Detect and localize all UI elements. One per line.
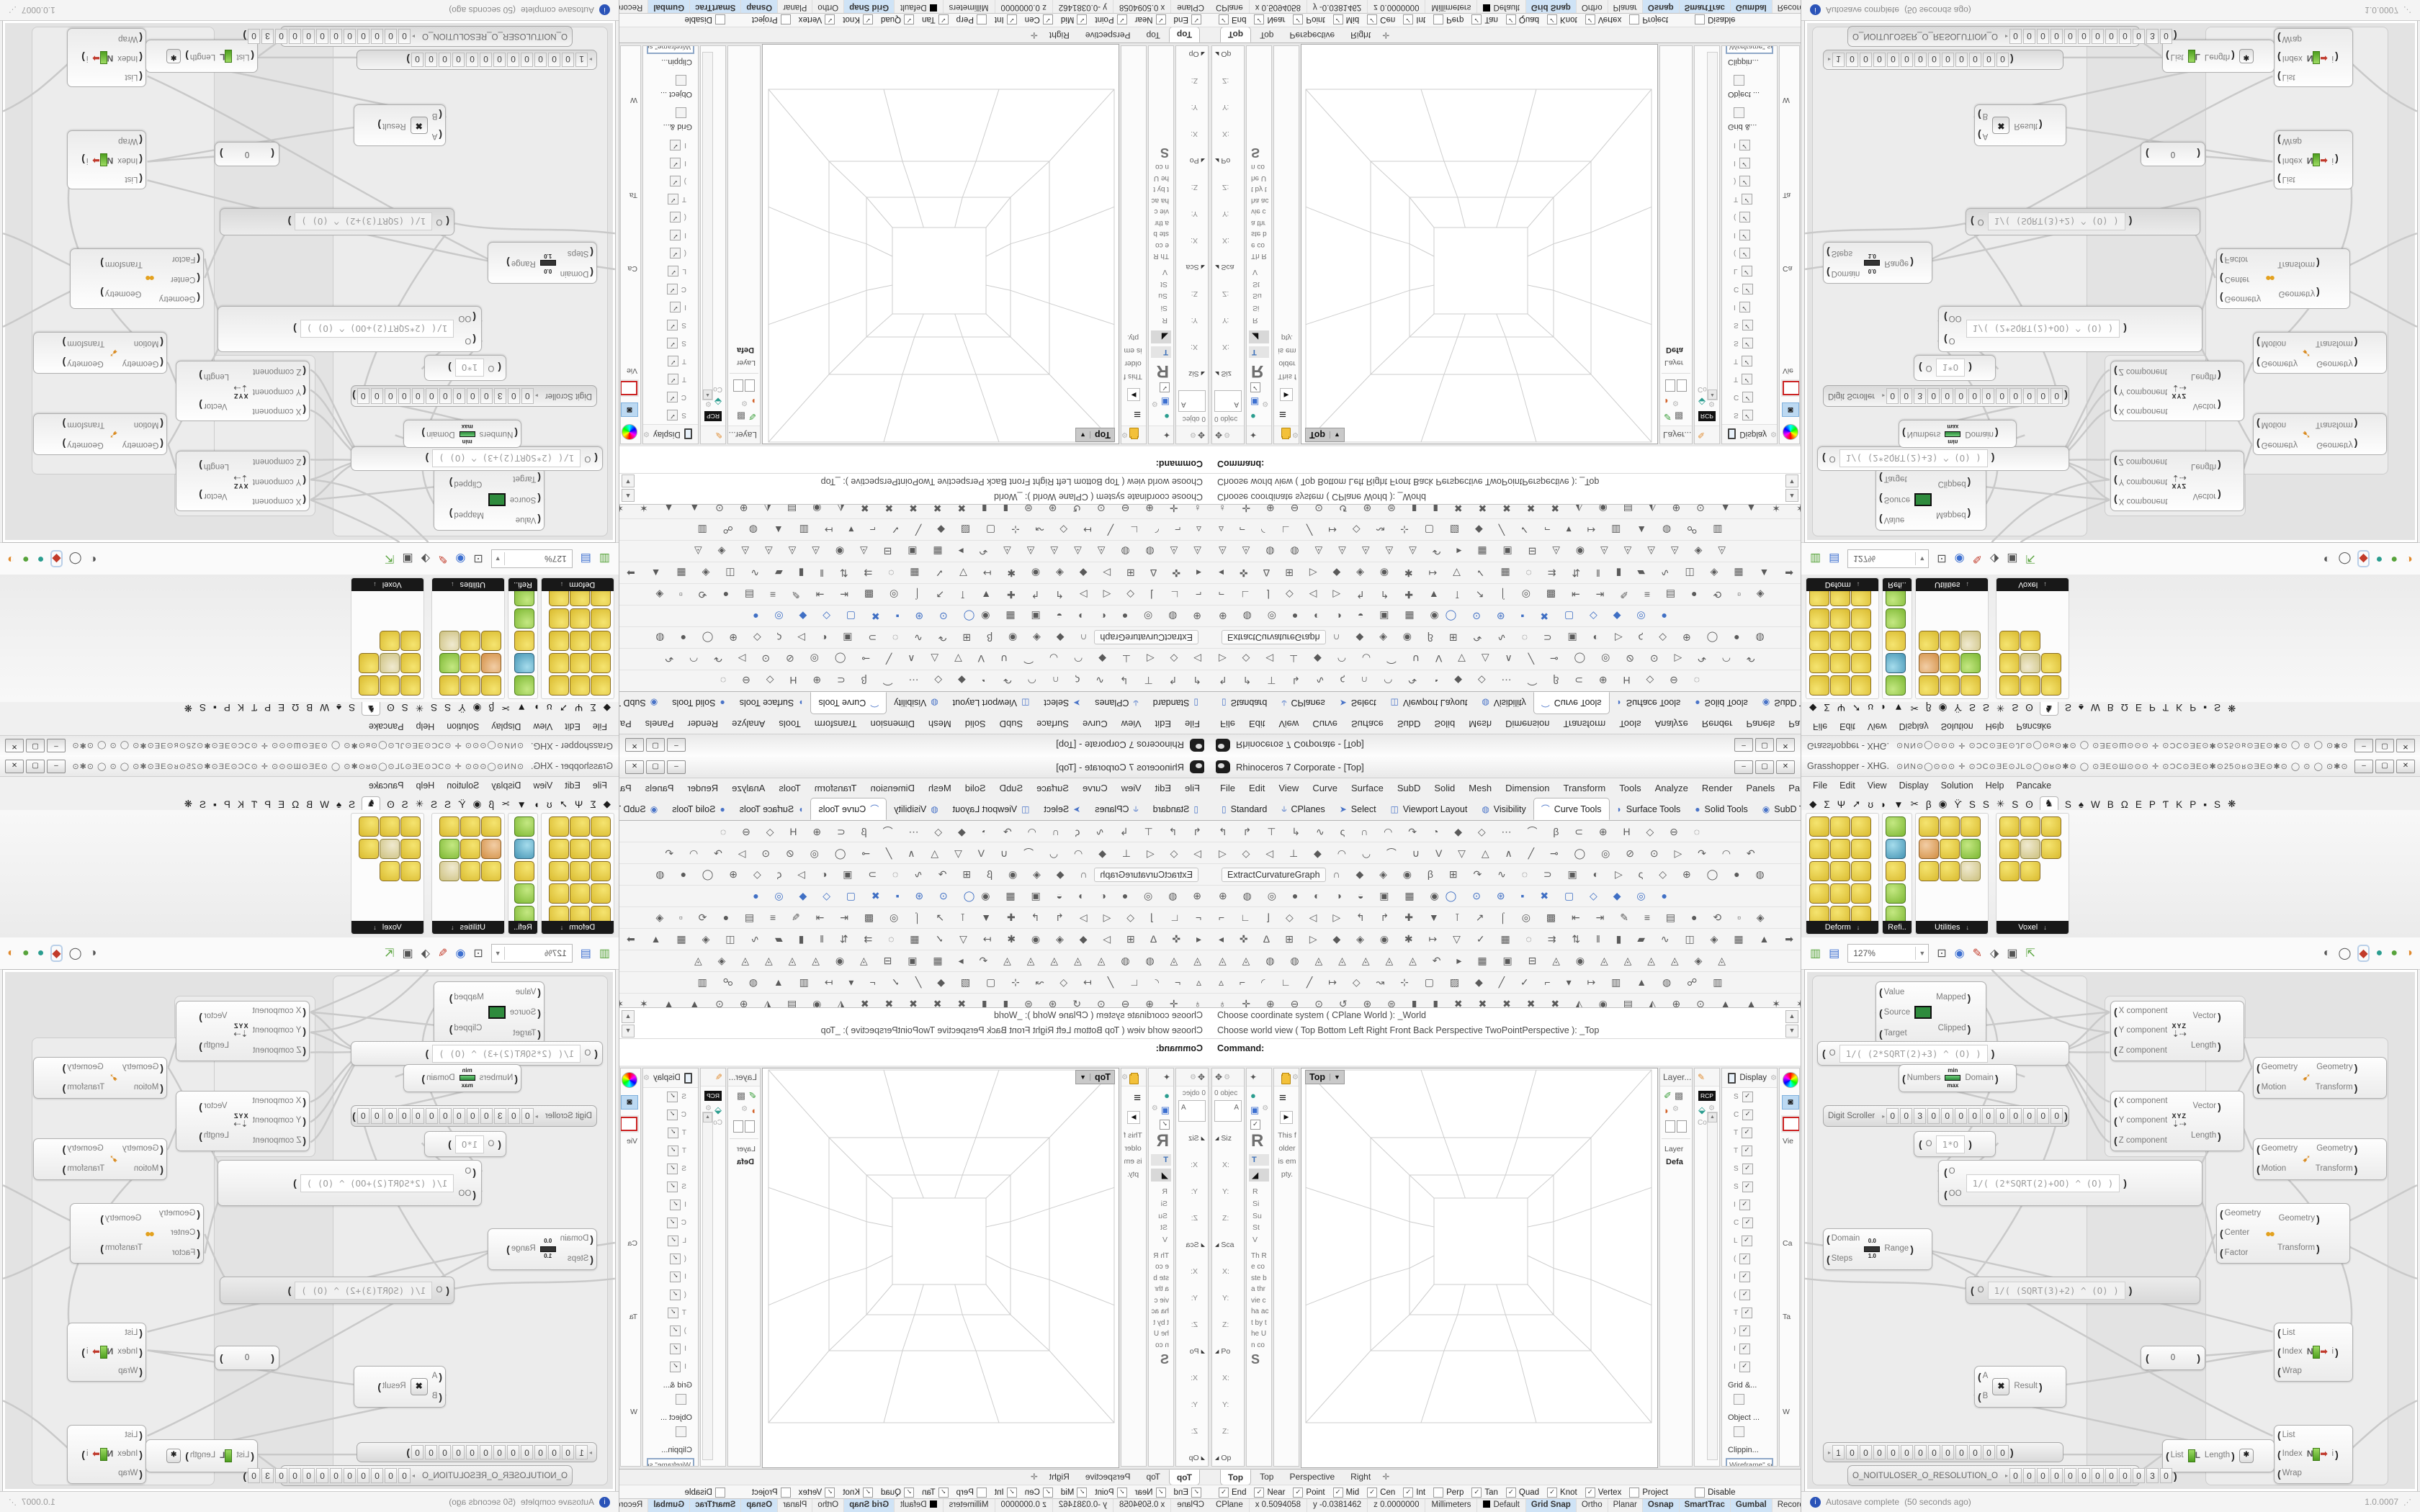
gh-category-tab-icon[interactable]: W xyxy=(2090,701,2101,714)
gh-menu-item[interactable]: Help xyxy=(1986,780,2004,791)
checker-icon[interactable]: ▩ xyxy=(1675,410,1683,422)
node-output-port[interactable]: Mapped xyxy=(1936,510,1971,520)
menu-item[interactable]: Panels xyxy=(645,783,674,793)
component-icon[interactable] xyxy=(549,631,569,651)
component-icon[interactable] xyxy=(591,608,611,629)
scroller-digit[interactable]: 0 xyxy=(2133,1468,2145,1483)
render-panel[interactable]: ✎ RCP ⬙⚙ Co ▲ xyxy=(1694,45,1720,444)
osnap-checkbox[interactable] xyxy=(1043,1488,1053,1498)
gh-category-tab-icon[interactable]: ◆ xyxy=(603,798,611,811)
scroller-digit[interactable]: 3 xyxy=(2146,29,2159,44)
toolbar-icons-row-6[interactable]: ◂ ✜ Δ ⊞ ▷ ◆ ◈ ◉ ✱ ↦ ▽ ✓ ▦ ◌ ⇉ ⇅ ‖ ▮ ▰ ∿ … xyxy=(619,929,1210,950)
node-input-port[interactable]: A xyxy=(432,1372,442,1382)
component-icon[interactable] xyxy=(1960,653,1981,673)
component-icon[interactable] xyxy=(591,839,611,859)
node-input-port[interactable]: Y component xyxy=(253,1116,306,1126)
boxedit-panel[interactable]: ✥⚙ 0 objec A SizX:Y:Z:ScaX:Y:Z:PoX:Y:Z:O… xyxy=(1211,45,1245,444)
node-list-length[interactable]: List L Length ✱ xyxy=(2162,1439,2275,1472)
component-icon[interactable] xyxy=(439,839,460,859)
component-icon[interactable] xyxy=(514,653,534,673)
gh-category-tab-icon[interactable]: ▪ xyxy=(2202,701,2208,714)
command-prompt[interactable]: Command: xyxy=(1210,1038,1801,1058)
learn-list-item[interactable]: Si xyxy=(1149,1198,1168,1210)
viewport-title-tab[interactable]: Top▼ xyxy=(1075,428,1115,442)
toolbar-tab[interactable]: ◍ Visibility xyxy=(887,692,945,714)
toolbar-tab[interactable]: ◉ SubD Too xyxy=(619,798,665,820)
node-input-port[interactable]: Domain xyxy=(560,1234,593,1244)
osnap-toggle[interactable]: End xyxy=(1174,1488,1201,1498)
osnap-checkbox[interactable] xyxy=(1506,15,1516,25)
hamburger-icon[interactable]: ≡ xyxy=(1274,407,1299,426)
command-area[interactable]: Choose coordinate system ( CPlane World … xyxy=(619,445,1210,505)
toolbar-tab[interactable]: ● Solid Tools xyxy=(1688,798,1754,820)
boxedit-field[interactable]: A xyxy=(1178,1100,1206,1122)
component-icon[interactable] xyxy=(380,631,400,651)
status-toggle[interactable]: SmartTrac xyxy=(1680,0,1731,13)
component-icon[interactable] xyxy=(1919,861,1939,881)
scroller-digit[interactable]: 0 xyxy=(508,388,520,404)
gh-category-tab-icon[interactable]: ♠ xyxy=(336,701,342,714)
expression-formula[interactable]: 1/( (2*SQRT(2)+3) ^ (O) ) xyxy=(432,1045,581,1063)
menu-item[interactable]: Transform xyxy=(815,783,857,793)
osnap-toggle[interactable]: Knot xyxy=(1547,1488,1577,1498)
expression-formula[interactable]: 1/( (SQRT(3)+2) ^ (O) ) xyxy=(1988,213,2125,231)
node-input-port[interactable]: Motion xyxy=(122,338,163,348)
node-input-port[interactable]: Value xyxy=(510,515,541,525)
zoom-extents-icon[interactable]: ⊡ xyxy=(473,946,483,960)
display-panel[interactable]: Display ⚙ S C xyxy=(642,1068,699,1467)
scroller-tick[interactable]: ▸ xyxy=(589,1449,592,1456)
zoom-select[interactable]: 127%▼ xyxy=(491,549,573,568)
node-input-port[interactable]: X component xyxy=(2114,1097,2167,1107)
learn-list-item[interactable]: R xyxy=(1252,1186,1271,1198)
menu-item[interactable]: Dimension xyxy=(871,783,915,793)
display-option-checkbox[interactable] xyxy=(1742,410,1753,420)
menu-item[interactable]: Edit xyxy=(1249,783,1265,793)
command-area[interactable]: Choose coordinate system ( CPlane World … xyxy=(1210,1007,1801,1067)
status-toggle[interactable]: Gumbal xyxy=(647,1499,689,1512)
gh-category-tab-icon[interactable]: Ψ xyxy=(574,701,583,714)
node-output-port[interactable]: Transform xyxy=(2316,1164,2358,1174)
osnap-checkbox[interactable] xyxy=(1219,1488,1229,1498)
gh-category-tab-icon[interactable]: S xyxy=(199,701,207,714)
scroller-digit[interactable]: 0 xyxy=(1968,1108,1981,1124)
axes-icon[interactable]: ⇱ xyxy=(385,552,394,566)
component-icon[interactable] xyxy=(2041,816,2061,837)
scroller-digit[interactable]: 0 xyxy=(1996,388,2008,404)
gh-maximize-button[interactable]: ▢ xyxy=(2375,739,2394,753)
osnap-checkbox[interactable] xyxy=(1077,1488,1087,1498)
toolbar-icons-row-8[interactable]: ▵ ⌐ ◜ ∟ ╱ ↦ ◇ ↝ ⊹ ▢ ▨ ◆ ╱ ✓ ⌐ ▾ ↦ ▥ ▲ ◍ … xyxy=(1210,972,1801,994)
layer-panel-tab[interactable]: Layer... xyxy=(728,1068,760,1086)
display-mode-dropdown[interactable]: Wireframe" set xyxy=(647,45,694,54)
gh-category-tab-icon[interactable]: K xyxy=(2175,701,2183,714)
toolbar-tab[interactable]: ➤ Select xyxy=(1036,798,1088,820)
expression-formula[interactable]: 1/( (SQRT(3)+2) ^ (O) ) xyxy=(295,213,432,231)
osnap-toggle[interactable]: Vertex xyxy=(1585,15,1622,25)
component-icon[interactable] xyxy=(1999,653,2020,673)
node-scale[interactable]: GeometryCenterFactor ●● GeometryTransfor… xyxy=(2216,1203,2350,1264)
osnap-checkbox[interactable] xyxy=(1367,15,1377,25)
node-input-port[interactable]: Wrap xyxy=(117,1367,143,1377)
node-digit-scroller-1[interactable]: Digit Scroller ▸ 0030000000000 ) xyxy=(1823,1105,2069,1127)
status-toggle[interactable]: Record History xyxy=(1773,0,1801,13)
new-file-icon[interactable]: ▥ xyxy=(1810,552,1821,566)
toolbar-icons-row-4[interactable]: ⊕ ◍ ◎ ● ◐ ◑ ◒ ▣ ▦ ◉ ◯ ⊙ ⊛ ▪ ✖ ▢ ◇ ◆ ◎ ● xyxy=(1210,886,1801,907)
osnap-checkbox[interactable] xyxy=(1117,1488,1127,1498)
grid-option-checkbox[interactable] xyxy=(676,107,686,118)
node-output-port[interactable]: Domain xyxy=(421,429,454,439)
gh-category-tab-icon[interactable]: W xyxy=(2090,798,2101,811)
toolbar-tab[interactable]: ◉ SubD Too xyxy=(1755,692,1801,714)
menu-item[interactable]: SubD xyxy=(1000,719,1023,730)
component-icon[interactable] xyxy=(1999,675,2020,696)
scroller-digit[interactable]: 0 xyxy=(412,388,424,404)
scroller-digit[interactable]: 0 xyxy=(344,29,356,44)
axes-icon[interactable]: ⇱ xyxy=(2025,552,2035,566)
scroller-tick[interactable]: ▸ xyxy=(535,1113,538,1120)
scroller-digit[interactable]: 0 xyxy=(452,1445,465,1459)
preview-off-icon[interactable]: ◐ xyxy=(90,552,97,565)
node-input-port[interactable]: Factor xyxy=(2220,1248,2261,1258)
gh-category-tab-icon[interactable]: S xyxy=(348,798,356,811)
component-icon[interactable] xyxy=(1886,653,1906,673)
component-icon[interactable] xyxy=(1940,631,1960,651)
component-icon[interactable] xyxy=(1886,608,1906,629)
menu-item[interactable]: View xyxy=(1278,719,1299,730)
menu-item[interactable]: Dimension xyxy=(1505,783,1549,793)
save-icon[interactable]: ▤ xyxy=(1829,552,1839,566)
toolbar-tab[interactable]: ● Solid Tools xyxy=(1688,692,1754,714)
osnap-toggle[interactable]: Cen xyxy=(1367,15,1395,25)
node-expression-1[interactable]: (O 1/( (2*SQRT(2)+3) ^ (O) ) ) xyxy=(351,446,603,471)
display-option-row[interactable]: I xyxy=(1722,298,1777,316)
gh-category-tab-icon[interactable]: S xyxy=(1982,798,1990,811)
menu-item[interactable]: SubD xyxy=(1000,783,1023,793)
gh-category-tab-icon[interactable]: ◉ xyxy=(472,701,483,714)
component-icon[interactable] xyxy=(1960,861,1981,881)
node-bounds[interactable]: Numbers minmax Domain xyxy=(1899,420,2017,448)
osnap-checkbox[interactable] xyxy=(1367,1488,1377,1498)
node-output-port[interactable]: Geometry xyxy=(2316,1063,2358,1073)
panel-value[interactable]: 0 xyxy=(2153,150,2194,158)
menu-item[interactable]: File xyxy=(1185,783,1200,793)
node-digit-scroller-resolution[interactable]: O_NOITULOSER_O_RESOLUTION_O ▸ 0000000000… xyxy=(280,26,573,47)
osnap-disable-checkbox[interactable] xyxy=(1695,15,1705,25)
gh-close-button[interactable]: ✕ xyxy=(5,760,24,773)
toolbar-icons-row-7[interactable]: ◬ ◬ ◍ ◍ ◬ ◬ ◬ ◬ ◬ ↶ ▸ ▦ ▣ ⊟ ◬ ◉ ◬ ◬ ◬ ◬ … xyxy=(619,540,1210,562)
layer-panel[interactable]: Layer... ✐▩ ◗⚙ Layer Defa xyxy=(727,45,761,444)
camera-projector-icon[interactable]: ⬙ xyxy=(714,1104,722,1116)
scroller-digit[interactable]: 0 xyxy=(411,1445,423,1459)
display-option-row[interactable]: I xyxy=(1722,154,1777,172)
checker-icon[interactable]: ▩ xyxy=(1675,1090,1683,1102)
display-option-checkbox[interactable] xyxy=(670,158,681,168)
toolbar-tab[interactable]: ◫ Viewport Layout xyxy=(1384,798,1475,820)
node-multiplication[interactable]: AB ✖ Result xyxy=(354,104,446,146)
gh-menu-item[interactable]: Solution xyxy=(447,780,479,791)
osnap-checkbox[interactable] xyxy=(1293,1488,1303,1498)
viewport-tab[interactable]: Right xyxy=(1343,27,1378,42)
viewport-top[interactable]: Top▼ xyxy=(762,44,1119,444)
scroller-digit[interactable]: 0 xyxy=(493,1445,506,1459)
node-output-port[interactable]: Vector xyxy=(2191,1012,2221,1022)
gh-category-tab-icon[interactable]: ▼ xyxy=(516,701,526,714)
scroller-digit[interactable]: 3 xyxy=(261,29,274,44)
play-icon[interactable]: ▶ xyxy=(1280,388,1293,401)
display-option-row[interactable]: T xyxy=(1722,370,1777,388)
osnap-toggle[interactable]: Tan xyxy=(922,15,949,25)
status-layer-cell[interactable]: Default xyxy=(894,1499,942,1512)
gumball-icon[interactable]: ⬗ xyxy=(421,946,430,960)
component-icon[interactable] xyxy=(2020,653,2040,673)
component-icon[interactable] xyxy=(380,816,400,837)
component-icon[interactable] xyxy=(570,839,590,859)
component-icon[interactable] xyxy=(514,631,534,651)
viewport-border-icon[interactable] xyxy=(620,1117,637,1131)
display-option-row[interactable]: S xyxy=(1722,1178,1777,1196)
status-toggle[interactable]: Ortho xyxy=(1577,1499,1608,1512)
toolbar-icons-row-2[interactable]: ▷ ◇ ◁ ⊥ ◆ ◠ ◡ ⌒ ∪ V ▽ △ ∧ ╱ ⊸ ◯ ◎ ⊘ ⊙ ▷ … xyxy=(619,842,1210,864)
close-button[interactable]: ✕ xyxy=(625,739,644,752)
display-option-row[interactable]: ( xyxy=(643,244,698,262)
gh-menu-item[interactable]: Edit xyxy=(565,721,581,732)
learn-panel-icon[interactable]: ✦ xyxy=(1247,1068,1271,1086)
node-input-port[interactable]: Wrap xyxy=(2277,1469,2303,1479)
node-input-port[interactable]: B xyxy=(1978,110,1988,120)
node-output-port[interactable]: Length xyxy=(199,1041,229,1051)
expression-formula[interactable]: 1/( (2*SQRT(2)+3) ^ (O) ) xyxy=(1839,1045,1988,1063)
display-option-checkbox[interactable] xyxy=(670,1362,681,1372)
toolbar-icons-row-1[interactable]: ↰ ↱ ⊤ ↳ ∿ ς ∩ ◠ ↷ ◔ ◆ ◇ ⋯ ⌒ β ⊂ ⊕ H ◇ ⊖ … xyxy=(1210,670,1801,691)
osnap-checkbox[interactable] xyxy=(1403,1488,1413,1498)
node-input-port[interactable]: Geometry xyxy=(159,1209,200,1219)
scroller-digit[interactable]: 0 xyxy=(548,53,560,67)
display-option-row[interactable]: T xyxy=(1722,1304,1777,1322)
component-icon[interactable] xyxy=(460,653,480,673)
extract-curvature-graph-button[interactable]: ExtractCurvatureGraph xyxy=(1222,868,1326,882)
display-option-row[interactable]: I xyxy=(1722,1196,1777,1214)
gh-close-button[interactable]: ✕ xyxy=(5,739,24,753)
scroller-digit[interactable]: 0 xyxy=(1900,1108,1912,1124)
gh-category-tab-icon[interactable]: ϔ xyxy=(1953,798,1962,811)
component-icon[interactable] xyxy=(570,883,590,904)
maximize-button[interactable]: ▢ xyxy=(646,739,665,752)
toolbar-tab[interactable]: ⌒ Curve Tools xyxy=(1533,798,1610,820)
learn-list-item[interactable]: V xyxy=(1252,1234,1271,1246)
osnap-disable-toggle[interactable]: Disable xyxy=(685,15,725,25)
scroller-digit[interactable]: 0 xyxy=(275,1468,287,1483)
node-input-port[interactable]: Geometry xyxy=(2220,293,2261,303)
scroller-digit[interactable]: 0 xyxy=(2023,29,2035,44)
gumball-icon[interactable]: ⬗ xyxy=(421,552,430,566)
gh-close-button[interactable]: ✕ xyxy=(2396,739,2415,753)
osnap-checkbox[interactable] xyxy=(1471,1488,1482,1498)
scroller-tick[interactable]: ▸ xyxy=(1828,1449,1831,1456)
menu-item[interactable]: Solid xyxy=(965,783,986,793)
component-icon[interactable] xyxy=(1940,839,1960,859)
gh-category-tab-icon[interactable]: Σ xyxy=(589,798,596,811)
scroller-digit[interactable]: 0 xyxy=(2064,29,2076,44)
scroller-digit[interactable]: 0 xyxy=(480,388,493,404)
node-output-port[interactable]: Mapped xyxy=(449,510,484,520)
scroller-digit[interactable]: 0 xyxy=(302,29,315,44)
gh-menu-item[interactable]: View xyxy=(533,721,552,732)
scroller-digit[interactable]: 0 xyxy=(371,1108,383,1124)
node-input-port[interactable]: X component xyxy=(253,405,306,415)
zoom-select[interactable]: 127%▼ xyxy=(1847,549,1929,568)
scroller-digit[interactable]: 0 xyxy=(398,388,411,404)
gh-category-tab-icon[interactable]: S xyxy=(430,798,438,811)
gh-category-tab-icon[interactable]: ✂ xyxy=(1910,701,1919,714)
gh-category-tab-icon[interactable]: ♞ xyxy=(362,701,380,716)
node-output-port[interactable]: Length xyxy=(185,1451,215,1461)
node-input-port[interactable]: Y component xyxy=(253,386,306,396)
toolbar-tab[interactable]: ◗ Surface Tools xyxy=(732,692,811,714)
scroller-digit[interactable]: 0 xyxy=(507,53,519,67)
status-cell[interactable]: y -0.0381462 xyxy=(1307,0,1368,13)
osnap-checkbox[interactable] xyxy=(1254,1488,1264,1498)
component-icon[interactable] xyxy=(1830,608,1850,629)
component-icon[interactable] xyxy=(1999,631,2020,651)
node-expression-1[interactable]: (O 1/( (2*SQRT(2)+3) ^ (O) ) ) xyxy=(351,1041,603,1066)
status-cell[interactable]: x 0.5094058 xyxy=(1113,1499,1170,1512)
learn-list-item[interactable]: St xyxy=(1252,278,1271,290)
page-icons[interactable] xyxy=(728,379,760,396)
node-vector-xyz-2[interactable]: X componentY componentZ component XYZ⇣⇢ … xyxy=(2110,1091,2244,1151)
gh-menu-item[interactable]: Display xyxy=(1899,780,1929,791)
component-icon[interactable] xyxy=(570,631,590,651)
component-icon[interactable] xyxy=(1830,631,1850,651)
gh-menu-item[interactable]: Edit xyxy=(1839,721,1855,732)
node-expression-2[interactable]: O OO 1/( (2*SQRT(2)+OO) ^ (O) ) ) xyxy=(1938,306,2202,352)
osnap-checkbox[interactable] xyxy=(1077,15,1087,25)
zoom-extents-icon[interactable]: ⊡ xyxy=(473,552,483,566)
component-icon[interactable] xyxy=(591,861,611,881)
rcp-chip[interactable]: RCP xyxy=(704,411,722,421)
expression-formula[interactable]: 1/( (2*SQRT(2)+OO) ^ (O) ) xyxy=(300,1174,454,1192)
node-output-port[interactable]: Transform xyxy=(63,1164,105,1174)
gh-category-tab-icon[interactable]: ✂ xyxy=(1910,798,1919,811)
scroller-tick[interactable]: ▸ xyxy=(2005,1472,2008,1479)
scroller-digit[interactable]: 0 xyxy=(2009,1468,2022,1483)
component-icon[interactable] xyxy=(1809,839,1829,859)
menu-item[interactable]: Panels xyxy=(1746,719,1775,730)
node-input-port[interactable]: X component xyxy=(2114,495,2167,505)
menu-item[interactable]: File xyxy=(1185,719,1200,730)
layer-panel[interactable]: Layer... ✐▩ ◗⚙ Layer Defa xyxy=(727,1068,761,1467)
gh-category-tab-icon[interactable]: S xyxy=(2213,701,2221,714)
chevron-down-icon[interactable]: ▼ xyxy=(1330,431,1340,438)
node-expression-1[interactable]: (O 1/( (2*SQRT(2)+3) ^ (O) ) ) xyxy=(1817,1041,2069,1066)
scroller-tick[interactable]: ▸ xyxy=(412,1472,415,1479)
gh-category-tab-icon[interactable]: ◗ xyxy=(533,701,540,714)
scroller-digit[interactable]: 0 xyxy=(2051,1108,2063,1124)
scroller-digit[interactable]: 0 xyxy=(357,29,369,44)
component-icon[interactable] xyxy=(591,816,611,837)
learn-list-item[interactable]: St xyxy=(1252,1222,1271,1234)
node-scale[interactable]: GeometryCenterFactor ●● GeometryTransfor… xyxy=(2216,248,2350,309)
osnap-checkbox[interactable] xyxy=(977,1488,987,1498)
node-range[interactable]: DomainSteps 0.01.0 Range xyxy=(1823,1228,1932,1270)
play-icon[interactable]: ▶ xyxy=(1127,1111,1140,1124)
node-move-2[interactable]: GeometryMotion ➹ GeometryTransform xyxy=(2253,332,2387,374)
display-option-row[interactable]: T xyxy=(643,190,698,208)
display-option-checkbox[interactable] xyxy=(1742,392,1753,402)
gh-category-tab-icon[interactable]: ➚ xyxy=(559,701,568,714)
toolbar-tab[interactable]: ▯ Standard xyxy=(1214,692,1274,714)
ribbon-caption[interactable]: Deform↓ xyxy=(1806,578,1878,591)
menu-item[interactable]: Transform xyxy=(1563,783,1605,793)
toolbar-icons-row-2[interactable]: ▷ ◇ ◁ ⊥ ◆ ◠ ◡ ⌒ ∪ V ▽ △ ∧ ╱ ⊸ ◯ ◎ ⊘ ⊙ ▷ … xyxy=(619,648,1210,670)
component-icon[interactable] xyxy=(1851,608,1871,629)
node-input-port[interactable]: List xyxy=(2277,1430,2303,1440)
scroller-digit[interactable]: 0 xyxy=(357,1108,369,1124)
learn-panel-icon[interactable]: ✦ xyxy=(1149,426,1173,444)
component-icon[interactable] xyxy=(514,861,534,881)
display-option-row[interactable]: T xyxy=(643,1142,698,1160)
gh-category-tab-icon[interactable]: ✳ xyxy=(1996,701,2005,714)
scroller-digit[interactable]: 0 xyxy=(371,29,383,44)
node-input-port[interactable]: List xyxy=(236,1451,254,1461)
display-option-checkbox[interactable] xyxy=(670,1290,681,1300)
scroller-digit[interactable]: 0 xyxy=(1955,53,1968,67)
node-multiplication[interactable]: AB ✖ Result xyxy=(1974,104,2066,146)
toolbar-icons-row-4[interactable]: ⊕ ◍ ◎ ● ◐ ◑ ◒ ▣ ▦ ◉ ◯ ⊙ ⊛ ▪ ✖ ▢ ◇ ◆ ◎ ● xyxy=(1210,605,1801,626)
display-option-checkbox[interactable] xyxy=(667,320,678,330)
node-expression-3[interactable]: (O 1/( (SQRT(3)+2) ^ (O) ) ) xyxy=(220,1277,454,1304)
component-icon[interactable] xyxy=(1999,816,2020,837)
scroller-digit[interactable]: 0 xyxy=(398,1108,411,1124)
node-output-port[interactable]: Transform xyxy=(100,1243,143,1254)
toolbar-tab[interactable]: ➤ Select xyxy=(1332,798,1384,820)
component-icon[interactable] xyxy=(460,675,480,696)
node-output-port[interactable]: Geometry xyxy=(100,289,143,299)
node-list-item-1[interactable]: ListIndexWrap N➡ i xyxy=(2274,1323,2353,1382)
node-input-port[interactable]: A xyxy=(1978,1372,1988,1382)
component-icon[interactable] xyxy=(1830,675,1850,696)
viewport-title-tab[interactable]: Top▼ xyxy=(1075,1070,1115,1084)
node-input-port[interactable]: Motion xyxy=(2257,338,2298,348)
node-input-port[interactable]: Geometry xyxy=(122,1063,163,1073)
gh-category-tab-icon[interactable]: P xyxy=(2148,701,2156,714)
node-move-1[interactable]: GeometryMotion ➹ GeometryTransform xyxy=(33,413,167,455)
scroller-digit[interactable]: 0 xyxy=(1982,388,1994,404)
node-input-port[interactable]: Index xyxy=(2277,155,2303,165)
osnap-toggle[interactable]: Int xyxy=(1403,1488,1425,1498)
display-option-row[interactable]: S xyxy=(1722,1088,1777,1106)
node-vector-xyz-1[interactable]: X componentY componentZ component XYZ⇣⇢ … xyxy=(2110,451,2244,511)
node-input-port[interactable]: Steps xyxy=(560,1254,593,1264)
scroller-digit[interactable]: 0 xyxy=(1860,1445,1872,1459)
node-range[interactable]: DomainSteps 0.01.0 Range xyxy=(488,242,597,284)
component-icon[interactable] xyxy=(2020,839,2040,859)
node-remap[interactable]: ValueSourceTarget MappedClipped xyxy=(434,981,544,1045)
gh-category-tab-icon[interactable]: ϔ xyxy=(457,798,466,811)
node-input-port[interactable]: B xyxy=(432,110,442,120)
osnap-toggle[interactable]: Cen xyxy=(1367,1488,1395,1498)
node-output-port[interactable]: Range xyxy=(1884,258,1914,268)
scroller-digit[interactable]: 0 xyxy=(1996,1445,2009,1459)
node-output-port[interactable]: Domain xyxy=(421,1074,454,1084)
component-icon[interactable] xyxy=(1830,816,1850,837)
node-output-port[interactable]: Transform xyxy=(2316,419,2358,429)
gh-category-tab-icon[interactable]: S xyxy=(2213,798,2221,811)
scroller-digit[interactable]: 0 xyxy=(2037,1468,2049,1483)
new-file-icon[interactable]: ▥ xyxy=(599,946,610,960)
panel-scrollbar[interactable]: ▲ xyxy=(702,1112,713,1460)
node-input-port[interactable]: Value xyxy=(510,987,541,997)
